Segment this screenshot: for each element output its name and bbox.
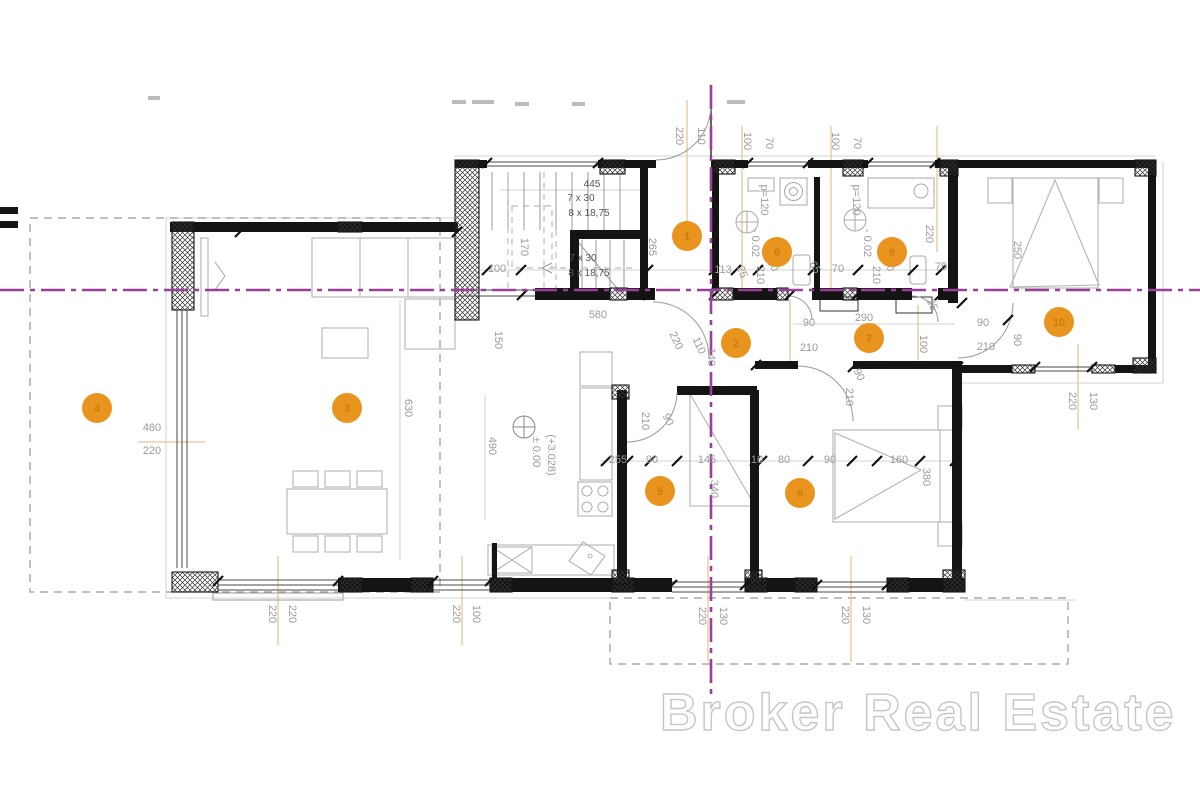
room-marker-number: 4 [94,403,101,415]
dim-label: 70 [832,263,844,275]
dim-label: 140 [705,348,717,366]
dim-label: 480 [143,422,161,434]
dim-label: 340 [708,480,720,498]
dim-label: 90 [851,367,867,383]
dim-label: 210 [754,266,766,284]
bed-top-right [1013,178,1098,288]
dim-label: 210 [977,341,995,353]
dim-label: 90 [977,317,989,329]
dim-label: 130 [1087,392,1099,410]
dim-label: 210 [800,342,818,354]
dim-label: 7 x 30 [569,253,597,264]
dim-label: 220 [450,605,462,623]
dim-label: 150 [492,331,504,349]
sofa [312,238,455,297]
dim-label: 220 [839,606,851,624]
dining-table [287,489,387,534]
furniture [201,178,1123,575]
level-marker [513,416,535,438]
dim-label: 265 [646,238,658,256]
dim-label: 290 [855,312,873,324]
dim-label: 220 [1066,392,1078,410]
dim-label: - 0.02 [749,229,761,257]
terrace-bottom-outline [610,598,1068,664]
dim-label: 250 [1011,241,1023,259]
dim-label: 10 [751,454,763,466]
dim-label: 220 [286,605,298,623]
dim-label: - 0.02 [861,229,873,257]
sofa-chaise [405,299,455,349]
dim-label: 490 [486,437,498,455]
dim-label: 210 [639,412,651,430]
dim-label: 630 [402,399,414,417]
fridge [580,352,612,386]
dim-label: 220 [266,605,278,623]
nightstand [988,178,1012,203]
floor-plan-page: 22011010070100704457 x 308 x 18,757 x 30… [0,0,1200,800]
tv-panel [201,238,208,316]
dim-label: ± 0.00 [530,437,542,468]
dim-label: 220 [696,607,708,625]
dim-label: 130 [717,607,729,625]
coffee-table [322,328,368,358]
dim-label: 113 [714,264,732,276]
dim-label: 220 [143,445,161,457]
bathtub [868,178,934,208]
dim-label: 160 [890,454,908,466]
room-marker-number: 6 [774,247,780,259]
dim-label: 90 [660,412,676,428]
leader-lines [138,100,1078,662]
dim-label: 70 [763,137,775,149]
tv-icon [215,262,225,290]
dim-label: 130 [860,606,872,624]
dim-label: 170 [518,238,530,256]
dim-label: p=120 [758,185,770,216]
dim-label: 90 [646,454,658,466]
dim-label: 90 [803,317,815,329]
axis-lines [0,85,1200,695]
dim-label: 100 [741,132,753,150]
dim-label: 90 [824,454,836,466]
room-marker-number: 2 [733,338,739,350]
dim-label: 255 [609,454,627,466]
dim-label: 220 [923,225,935,243]
dim-label: 7 x 30 [567,193,595,204]
dim-label: 580 [589,309,607,321]
kitchen-sink [569,542,605,575]
dim-label: 90 [1011,334,1023,346]
watermark: Broker Real Estate [660,684,1176,742]
room-marker-number: 7 [866,333,872,345]
dim-label: 445 [584,179,601,190]
nightstand [1099,178,1123,203]
dim-label: (+3.028) [545,434,557,475]
top-smudges [148,96,745,106]
dim-label: 110 [695,127,707,145]
room-marker-number: 10 [1053,317,1065,329]
dim-label: 75 [935,261,947,273]
room-marker-number: 3 [344,403,350,415]
dim-label: 210 [843,388,855,406]
kitchen-counter [580,388,612,480]
dim-label: 70 [851,137,863,149]
room-marker-number: 5 [657,486,663,498]
dim-label: 8 x 18,75 [568,208,610,219]
room-marker-number: 1 [684,231,690,243]
dim-label: 210 [870,266,882,284]
dim-label: p=120 [850,185,862,216]
dim-label: 8 x 18,75 [568,268,610,279]
dim-label: 25 [734,264,749,280]
dim-label: 100 [829,132,841,150]
room-marker-number: 8 [797,488,803,500]
dim-label: 380 [920,468,932,486]
dim-label: 100 [470,605,482,623]
dim-label: 220 [673,127,685,145]
dim-label: 100 [917,335,929,353]
dim-label: 145 [698,454,716,466]
room-marker-number: 9 [889,247,895,259]
floor-plan-canvas: 22011010070100704457 x 308 x 18,757 x 30… [0,0,1200,800]
dim-label: 220 [666,330,685,352]
dim-label: 80 [778,454,790,466]
dim-label: 100 [488,263,506,275]
